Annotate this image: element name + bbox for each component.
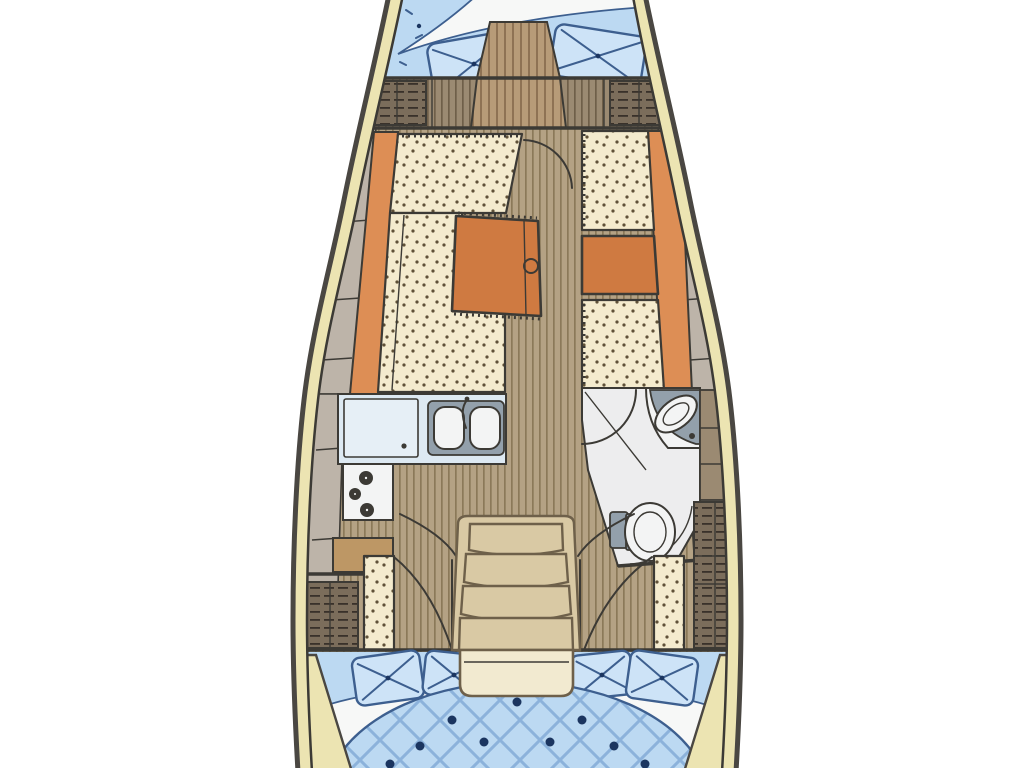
step-landing <box>460 650 573 696</box>
step-4 <box>459 618 573 650</box>
aft-port-cushion-strip <box>364 556 394 650</box>
sink-basin-left <box>434 407 464 449</box>
step-3 <box>461 586 571 621</box>
interior <box>280 0 750 768</box>
sailboat-floor-plan <box>0 0 1024 768</box>
stbd-settee-cushion-aft <box>582 300 664 390</box>
step-1 <box>469 524 563 555</box>
floor-plan-canvas <box>0 0 1024 768</box>
icebox-lid <box>344 399 418 457</box>
bulkhead-walkway <box>471 78 566 128</box>
bow-wood-insert <box>477 22 560 78</box>
stbd-settee-cushion-fwd <box>582 131 654 230</box>
aft-pillow-1 <box>351 650 425 707</box>
sink-basin-right <box>470 407 500 449</box>
port-settee-fwd-cushion <box>390 134 522 213</box>
aft-pillow-4 <box>625 650 699 707</box>
salon-table <box>452 216 541 316</box>
stbd-mid-locker <box>582 236 658 294</box>
aft-stbd-cushion-strip <box>654 556 684 650</box>
step-2 <box>464 554 568 588</box>
